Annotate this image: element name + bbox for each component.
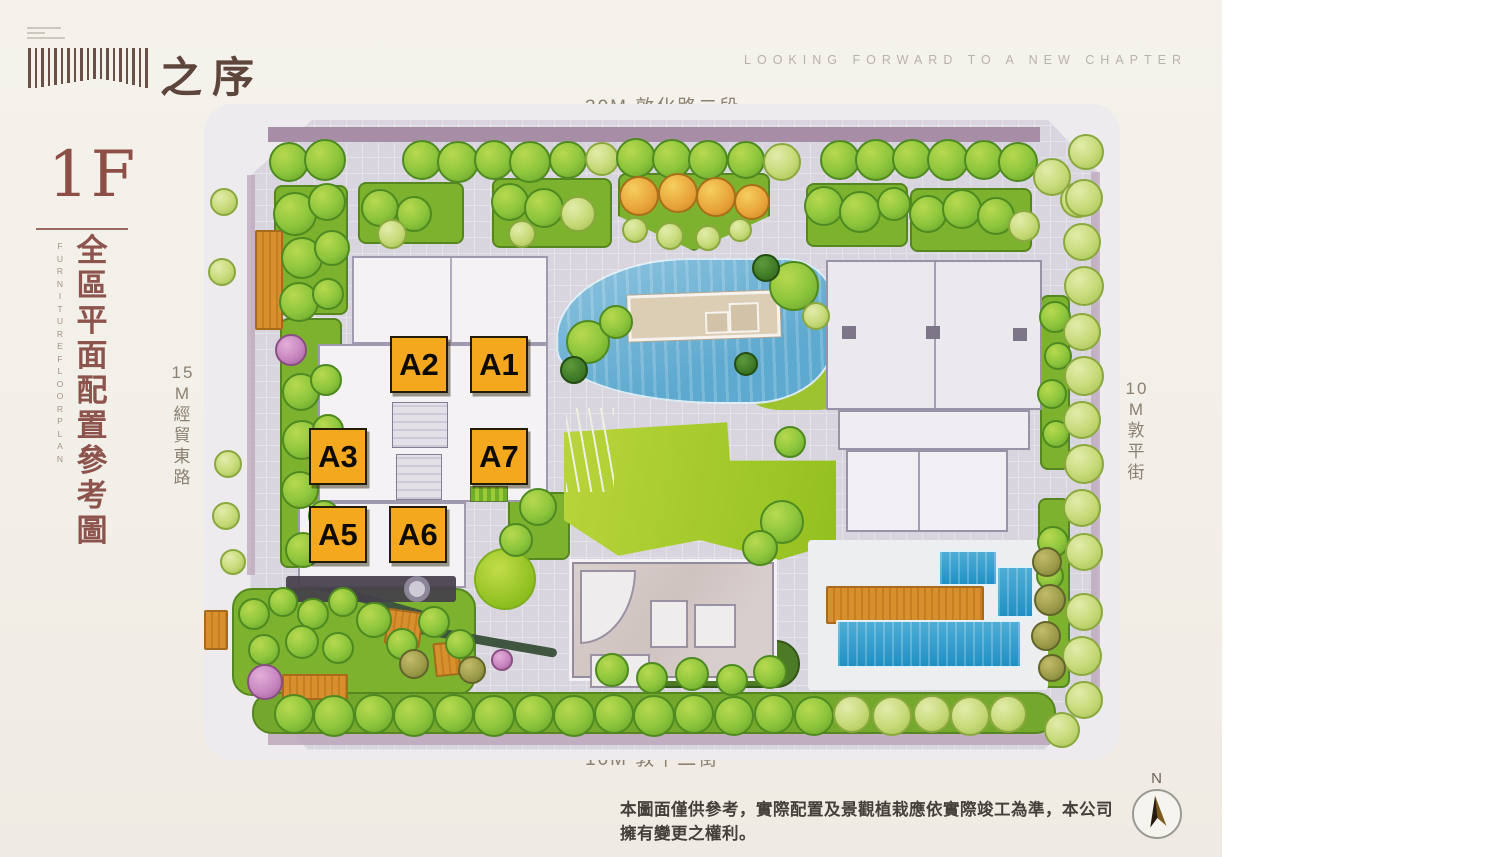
tree-icon <box>696 177 736 217</box>
tree-icon <box>716 664 748 696</box>
clubhouse-curve-wall <box>580 570 636 644</box>
sidewalk-north <box>268 127 1040 142</box>
tree-icon <box>399 649 429 679</box>
tree-icon <box>594 694 634 734</box>
tree-icon <box>1065 179 1103 217</box>
west-tower-upper <box>352 256 548 344</box>
sidewalk-west <box>247 175 255 575</box>
pavilion-room <box>729 302 760 333</box>
column <box>842 326 856 339</box>
tree-icon <box>220 549 246 575</box>
tree-icon <box>275 334 307 366</box>
tree-icon <box>377 219 407 249</box>
stair-core <box>396 454 442 500</box>
wood-deck <box>255 230 283 330</box>
logo-text: 之序 <box>160 44 264 105</box>
tree-icon <box>656 222 684 250</box>
driveway-column <box>404 576 430 602</box>
tree-icon <box>728 218 752 242</box>
tree-icon <box>519 488 557 526</box>
unit-label-a2: A2 <box>390 336 448 393</box>
tree-icon <box>285 625 319 659</box>
tree-icon <box>714 696 754 736</box>
tagline: LOOKING FORWARD TO A NEW CHAPTER <box>744 53 1187 67</box>
tree-icon <box>1065 593 1103 631</box>
tree-icon <box>508 220 536 248</box>
tree-icon <box>212 502 240 530</box>
tree-icon <box>1044 712 1080 748</box>
tree-icon <box>1063 313 1101 351</box>
unit-label-a1: A1 <box>470 336 528 393</box>
tree-icon <box>304 139 346 181</box>
swimming-pool <box>836 620 1022 668</box>
east-tower-lower <box>846 450 1008 532</box>
tree-icon <box>314 230 350 266</box>
tree-icon <box>753 655 787 689</box>
tree-icon <box>833 695 871 733</box>
tree-icon <box>727 141 765 179</box>
tree-icon <box>636 662 668 694</box>
tree-icon <box>1068 134 1104 170</box>
tree-icon <box>942 189 982 229</box>
tree-icon <box>1063 401 1101 439</box>
tree-icon <box>633 695 675 737</box>
lawn-terrace-steps <box>566 408 614 492</box>
tree-icon <box>675 657 709 691</box>
tree-icon <box>208 258 236 286</box>
tree-icon <box>595 653 629 687</box>
tree-icon <box>210 188 238 216</box>
brochure-page: 之序 LOOKING FORWARD TO A NEW CHAPTER 1F F… <box>0 0 1509 857</box>
tree-icon <box>622 217 648 243</box>
tree-icon <box>474 140 514 180</box>
tree-icon <box>688 140 728 180</box>
tree-icon <box>927 139 969 181</box>
tree-icon <box>322 632 354 664</box>
tree-icon <box>695 225 721 251</box>
tree-icon <box>553 695 595 737</box>
tree-icon <box>310 364 342 396</box>
tree-icon <box>491 183 529 221</box>
east-tower-mid <box>838 410 1030 450</box>
pavilion-room <box>705 311 730 334</box>
logo-barcode-icon <box>28 48 148 92</box>
wall-line <box>450 258 452 342</box>
tree-icon <box>445 629 475 659</box>
tree-icon <box>1031 621 1061 651</box>
tree-icon <box>328 587 358 617</box>
tree-icon <box>1064 444 1104 484</box>
tree-icon <box>247 664 283 700</box>
tree-icon <box>616 138 656 178</box>
tree-icon <box>619 176 659 216</box>
tree-icon <box>269 142 309 182</box>
tree-icon <box>268 587 298 617</box>
compass-north-label: N <box>1128 770 1186 787</box>
column <box>926 326 940 339</box>
tree-icon <box>1037 379 1067 409</box>
unit-label-a5: A5 <box>309 506 367 563</box>
floor-label: 1F <box>48 138 137 212</box>
tree-icon <box>1064 266 1104 306</box>
wall-line <box>918 452 920 530</box>
tree-icon <box>560 196 596 232</box>
tree-icon <box>804 186 844 226</box>
tree-icon <box>794 696 834 736</box>
swimming-pool-small <box>938 550 998 586</box>
tree-icon <box>560 356 588 384</box>
tree-icon <box>549 141 587 179</box>
unit-label-a3: A3 <box>309 428 367 485</box>
tree-icon <box>1034 584 1066 616</box>
logo-microtext <box>27 27 67 42</box>
page-title-zh: 全區平面配置參考圖 <box>72 236 112 547</box>
column <box>1013 328 1027 341</box>
tree-icon <box>274 694 314 734</box>
tree-icon <box>1065 533 1103 571</box>
tree-icon <box>434 694 474 734</box>
tree-icon <box>1008 210 1040 242</box>
tree-icon <box>734 352 758 376</box>
tree-icon <box>308 183 346 221</box>
tree-icon <box>356 602 392 638</box>
tree-icon <box>754 694 794 734</box>
tree-icon <box>1038 654 1066 682</box>
pond-pavilion <box>627 290 781 341</box>
swimming-pool-small <box>996 566 1034 618</box>
tree-icon <box>248 634 280 666</box>
tree-icon <box>1063 489 1101 527</box>
tree-icon <box>214 450 242 478</box>
compass: N <box>1128 770 1186 850</box>
clubhouse-room <box>650 600 688 648</box>
tree-icon <box>802 302 830 330</box>
tree-icon <box>742 530 778 566</box>
east-tower-main <box>826 260 1042 410</box>
compass-arrow-icon <box>1138 792 1176 835</box>
tree-icon <box>238 598 270 630</box>
tree-icon <box>418 606 450 638</box>
tree-icon <box>585 142 619 176</box>
page-margin <box>1222 0 1509 857</box>
tree-icon <box>734 184 770 220</box>
tree-icon <box>674 694 714 734</box>
tree-icon <box>1063 223 1101 261</box>
tree-icon <box>509 141 551 183</box>
tree-icon <box>763 143 801 181</box>
tree-icon <box>855 139 897 181</box>
tree-icon <box>514 694 554 734</box>
tree-icon <box>491 649 513 671</box>
tree-icon <box>877 187 911 221</box>
tree-icon <box>774 426 806 458</box>
tree-icon <box>839 191 881 233</box>
tree-icon <box>437 141 479 183</box>
tree-icon <box>458 656 486 684</box>
unit-label-a6: A6 <box>389 506 447 563</box>
street-label-east: 10M敦平街 <box>1122 380 1152 481</box>
compass-circle <box>1132 789 1182 839</box>
tree-icon <box>913 695 951 733</box>
tree-icon <box>499 523 533 557</box>
entry-landscape-strip <box>470 486 508 502</box>
disclaimer-text: 本圖面僅供參考，實際配置及景觀植栽應依實際竣工為準，本公司擁有變更之權利。 <box>620 796 1122 844</box>
street-label-west: 15M經貿東路 <box>168 364 198 486</box>
tree-icon <box>312 278 344 310</box>
tree-icon <box>354 694 394 734</box>
tree-icon <box>1062 636 1102 676</box>
tree-icon <box>313 695 355 737</box>
tree-icon <box>950 696 990 736</box>
circular-lawn <box>474 548 536 610</box>
tree-icon <box>872 696 912 736</box>
tree-icon <box>909 195 947 233</box>
pool-deck <box>826 586 984 624</box>
tree-icon <box>1064 356 1104 396</box>
tree-icon <box>402 140 442 180</box>
page-title-en: FURNITUREFLOORPLAN <box>52 242 68 463</box>
tree-icon <box>599 305 633 339</box>
tree-icon <box>473 695 515 737</box>
title-divider <box>36 228 128 230</box>
tree-icon <box>820 140 860 180</box>
tree-icon <box>998 142 1038 182</box>
tree-icon <box>752 254 780 282</box>
tree-icon <box>393 695 435 737</box>
tree-icon <box>658 173 698 213</box>
unit-label-a7: A7 <box>470 428 528 485</box>
tree-icon <box>892 139 932 179</box>
clubhouse-room <box>694 604 736 648</box>
elevator-core <box>392 402 448 448</box>
wood-deck <box>204 610 228 650</box>
tree-icon <box>989 695 1027 733</box>
tree-icon <box>1032 547 1062 577</box>
